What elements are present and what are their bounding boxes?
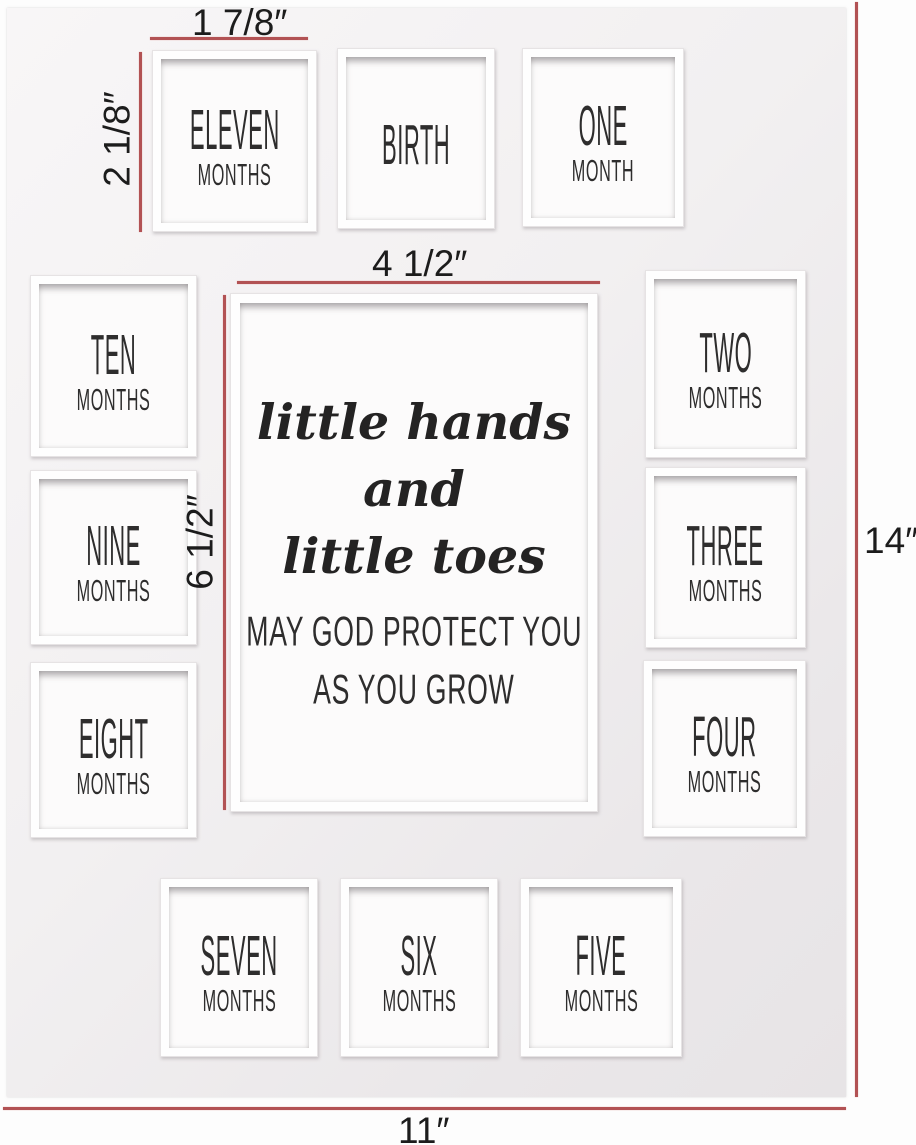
opening-label: BIRTH xyxy=(382,114,450,178)
quote-line-3: little toes xyxy=(282,523,545,590)
opening-label: FOUR xyxy=(692,706,756,770)
opening-center-quote: little hands and little toes MAY GOD PRO… xyxy=(230,293,598,812)
opening-nine-months: NINEMONTHS xyxy=(30,470,197,645)
opening-sublabel: MONTHS xyxy=(382,983,456,1019)
opening-sublabel: MONTHS xyxy=(564,983,638,1019)
opening-window: TENMONTHS xyxy=(39,284,188,448)
dim-line-mat-width xyxy=(3,1107,846,1110)
opening-ten-months: TENMONTHS xyxy=(30,275,197,457)
dim-label-mat-width: 11″ xyxy=(398,1110,450,1145)
opening-five-months: FIVEMONTHS xyxy=(520,878,682,1057)
opening-label: NINE xyxy=(86,515,141,579)
opening-label: SIX xyxy=(401,925,438,989)
opening-label: TEN xyxy=(91,324,137,388)
opening-three-months: THREEMONTHS xyxy=(645,467,806,648)
opening-seven-months: SEVENMONTHS xyxy=(160,878,318,1057)
opening-window: FOURMONTHS xyxy=(652,669,797,828)
opening-eleven-months: ELEVENMONTHS xyxy=(152,50,317,232)
dim-line-small-opening-height xyxy=(139,52,142,232)
opening-label: SEVEN xyxy=(200,925,277,989)
opening-sublabel: MONTH xyxy=(572,153,634,189)
opening-two-months: TWOMONTHS xyxy=(645,270,806,458)
opening-sublabel: MONTHS xyxy=(688,764,762,800)
dim-line-mat-height xyxy=(855,2,858,1097)
opening-birth: BIRTH xyxy=(337,48,495,229)
opening-sublabel: MONTHS xyxy=(689,573,763,609)
dim-label-center-opening-height: 6 1/2″ xyxy=(180,494,222,589)
opening-window: BIRTH xyxy=(346,57,486,220)
opening-sublabel: MONTHS xyxy=(77,573,151,609)
quote-line-2: and xyxy=(363,456,465,523)
opening-label: FIVE xyxy=(576,925,627,989)
center-quote-window: little hands and little toes MAY GOD PRO… xyxy=(240,303,588,802)
quote-line-1: little hands xyxy=(257,389,571,456)
opening-four-months: FOURMONTHS xyxy=(643,660,806,837)
opening-label: THREE xyxy=(687,515,764,579)
opening-sublabel: MONTHS xyxy=(77,766,151,802)
opening-window: SEVENMONTHS xyxy=(169,887,309,1048)
blessing-line-2: AS YOU GROW xyxy=(313,665,514,714)
opening-one-month: ONEMONTH xyxy=(522,48,684,227)
dim-label-mat-height: 14″ xyxy=(864,520,916,562)
opening-window: ELEVENMONTHS xyxy=(161,59,308,223)
dim-label-center-opening-width: 4 1/2″ xyxy=(372,243,467,285)
dim-line-small-opening-width xyxy=(150,37,308,40)
opening-six-months: SIXMONTHS xyxy=(340,878,498,1057)
opening-window: FIVEMONTHS xyxy=(529,887,673,1048)
milestone-mat-diagram: ELEVENMONTHSBIRTHONEMONTHTENMONTHSTWOMON… xyxy=(0,0,916,1145)
opening-window: THREEMONTHS xyxy=(654,476,797,639)
opening-sublabel: MONTHS xyxy=(77,382,151,418)
opening-window: EIGHTMONTHS xyxy=(39,671,188,829)
dim-label-small-opening-height: 2 1/8″ xyxy=(97,91,139,186)
opening-label: TWO xyxy=(699,322,752,386)
dim-line-center-opening-height xyxy=(223,295,226,810)
blessing-line-1: MAY GOD PROTECT YOU xyxy=(246,607,582,656)
opening-label: ELEVEN xyxy=(190,99,280,163)
opening-eight-months: EIGHTMONTHS xyxy=(30,662,197,838)
opening-sublabel: MONTHS xyxy=(689,380,763,416)
opening-sublabel: MONTHS xyxy=(202,983,276,1019)
opening-window: TWOMONTHS xyxy=(654,279,797,449)
opening-window: SIXMONTHS xyxy=(349,887,489,1048)
opening-window: ONEMONTH xyxy=(531,57,675,218)
opening-label: EIGHT xyxy=(79,708,149,772)
dim-line-center-opening-width xyxy=(237,281,600,284)
opening-sublabel: MONTHS xyxy=(198,157,272,193)
opening-window: NINEMONTHS xyxy=(39,479,188,636)
opening-label: ONE xyxy=(578,95,627,159)
